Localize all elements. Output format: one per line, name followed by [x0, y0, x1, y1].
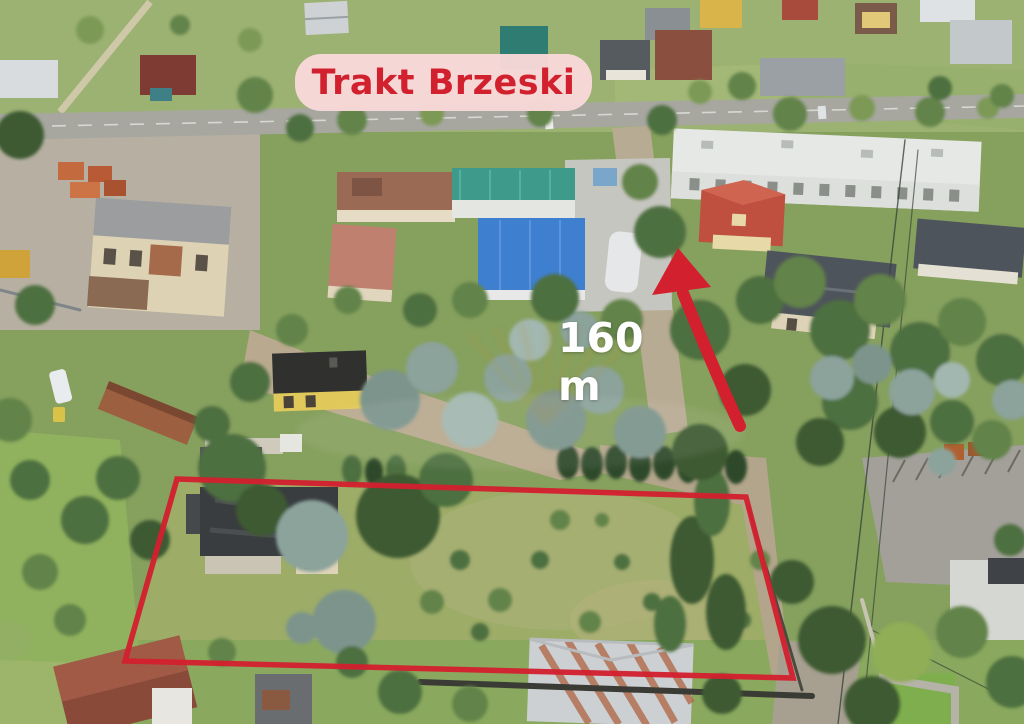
distance-label: 160 m	[558, 314, 698, 410]
arrow-head	[652, 248, 711, 295]
road-name-badge: Trakt Brzeski	[295, 54, 592, 111]
parcel-outline	[125, 479, 793, 678]
aerial-photo: Trakt Brzeski 160 m	[0, 0, 1024, 724]
